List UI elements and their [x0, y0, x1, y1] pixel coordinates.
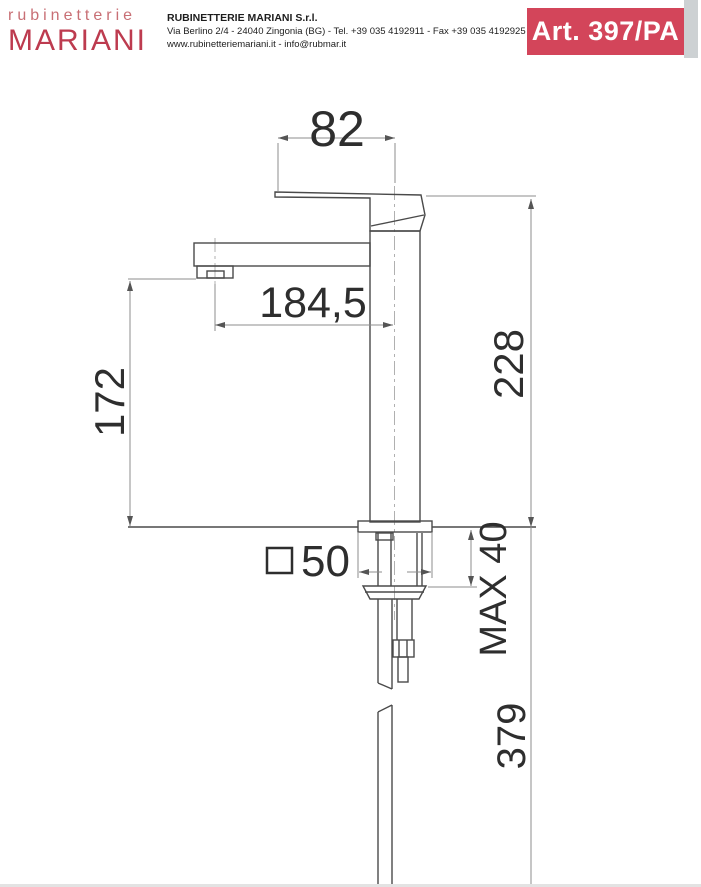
dim-label-spout-height: 172 — [86, 367, 133, 437]
arrow-228-bottom — [528, 517, 534, 527]
datasheet-page: rubinetterie MARIANI RUBINETTERIE MARIAN… — [0, 0, 701, 887]
arrow-82-left — [278, 135, 288, 141]
hex-fitting — [393, 640, 414, 657]
dim-label-spout-reach: 184,5 — [259, 279, 367, 327]
arrow-184-right — [383, 322, 393, 328]
handle-lever — [275, 192, 425, 231]
arrow-172-top — [127, 281, 133, 291]
pipe-upper — [397, 599, 412, 640]
dim-label-overall-height: 228 — [485, 329, 532, 399]
hose-upper-segment — [378, 599, 392, 689]
shank-rods — [378, 533, 422, 586]
dim-label-handle-width: 82 — [309, 101, 365, 157]
dim-label-body-square: 50 — [301, 537, 350, 586]
technical-drawing: 82 184,5 172 228 MAX 40 379 50 — [0, 0, 701, 887]
arrow-50-left — [359, 569, 369, 575]
arrow-50-right — [421, 569, 431, 575]
spout-arm — [194, 243, 370, 266]
arrow-184-left — [215, 322, 225, 328]
pipe-stub — [398, 657, 408, 682]
dim-172-lines — [128, 279, 196, 526]
hex-facets — [399, 640, 407, 657]
hose-lower-segment — [378, 705, 392, 885]
supply-pipe — [393, 599, 414, 682]
arrow-82-right — [385, 135, 395, 141]
dim-label-below-deck: 379 — [490, 703, 534, 770]
threaded-shank — [376, 533, 422, 586]
handle-joint-line — [371, 215, 424, 226]
flexible-hose — [378, 599, 392, 885]
dimension-lines — [128, 138, 536, 885]
dim-label-max-deck: MAX 40 — [473, 521, 515, 656]
square-section-symbol — [267, 548, 292, 573]
arrow-172-bottom — [127, 516, 133, 526]
dimension-arrows — [127, 135, 534, 586]
arrow-228-top — [528, 199, 534, 209]
